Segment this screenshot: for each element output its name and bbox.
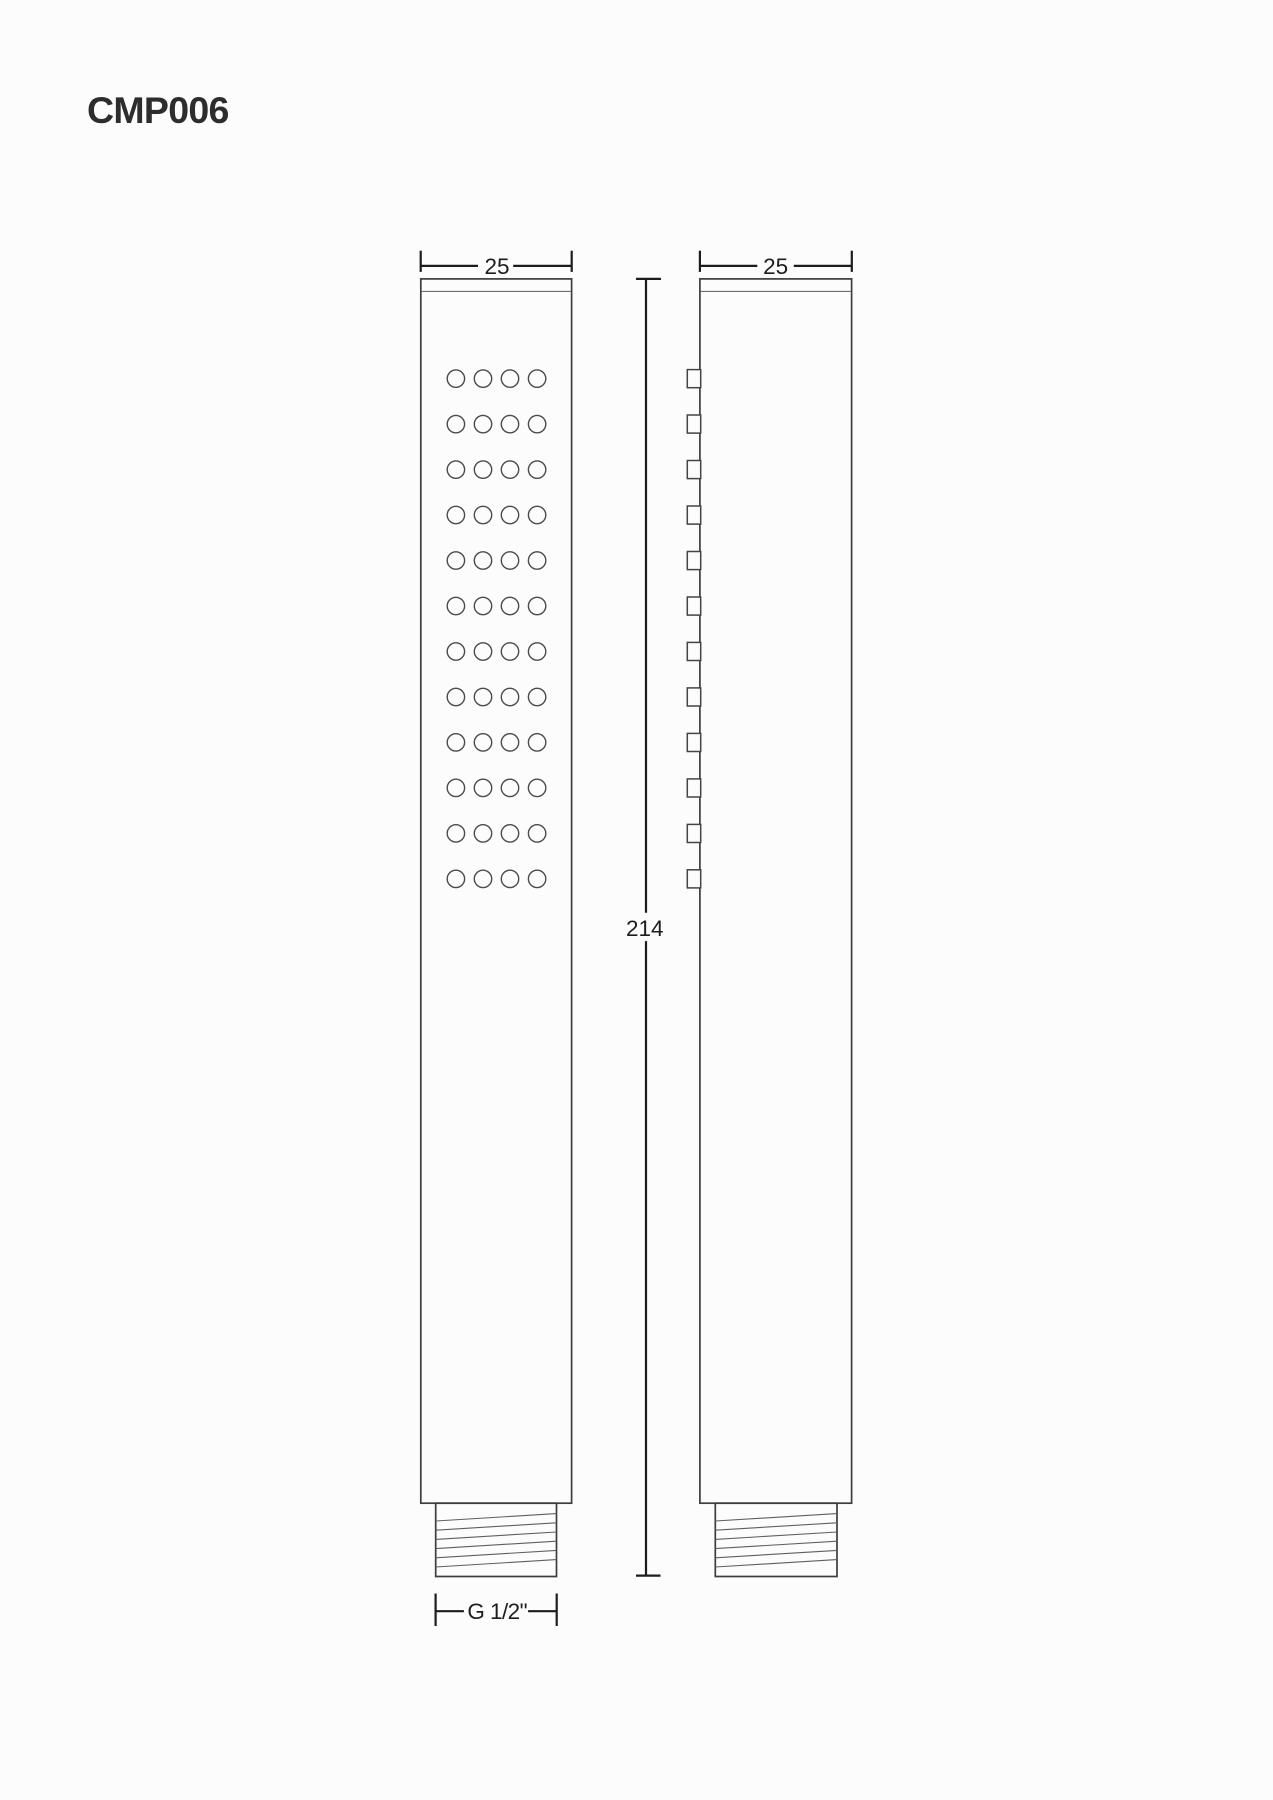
- svg-text:25: 25: [763, 254, 788, 279]
- svg-text:25: 25: [484, 254, 509, 279]
- svg-text:214: 214: [626, 916, 664, 941]
- svg-text:CMP006: CMP006: [87, 89, 229, 131]
- svg-text:G 1/2": G 1/2": [467, 1599, 527, 1624]
